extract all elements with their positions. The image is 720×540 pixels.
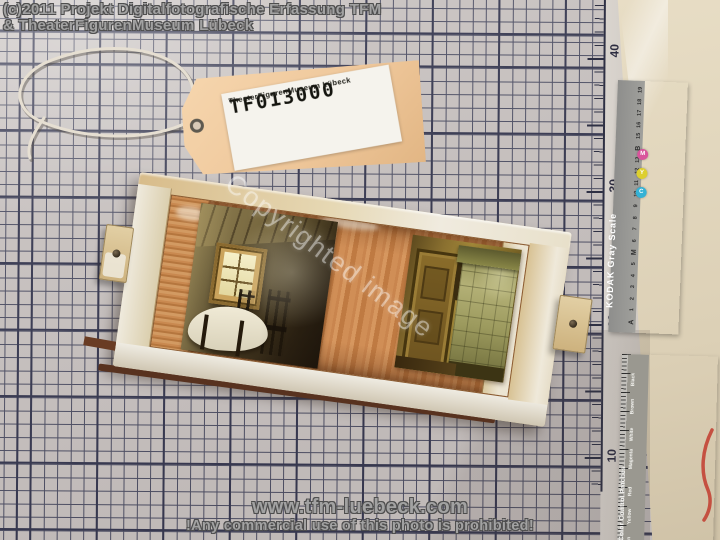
gray-scale-step-label: 18 (637, 95, 643, 107)
photo-stove-cornice (457, 245, 522, 270)
gray-scale-step-label: 5 (631, 258, 637, 270)
color-patch-label: White (629, 428, 635, 442)
prohibition-notice: !Any commercial use of this photo is pro… (0, 518, 720, 534)
website-watermark: www.tfm-luebeck.com (0, 496, 720, 519)
color-patch-label: Red (627, 487, 633, 497)
mat-ruler-number: 40 (607, 38, 621, 64)
color-patch-label: Brown (629, 398, 635, 414)
gray-scale-step-label: 6 (632, 234, 638, 246)
gray-scale-step-label: 7 (632, 223, 638, 235)
tag-label: TF013000 TheaterFigurenMuseum Lübeck (221, 65, 402, 171)
copyright-line2: & TheaterFigurenMuseum Lübeck (3, 17, 253, 34)
color-patch-label: Magenta (628, 448, 635, 468)
gray-scale-step-label: 4 (630, 269, 636, 281)
gray-scale-step-label: 3 (630, 281, 636, 293)
color-patch-label: Black (630, 373, 636, 386)
mat-ruler-number: 10 (605, 443, 619, 469)
gray-scale-step-label: 19 (637, 84, 643, 96)
photo-stage: 40302010 TF013000 TheaterFigurenMuseum L… (0, 0, 720, 540)
gray-scale-step-label: M (631, 247, 638, 259)
latch-screw (568, 319, 577, 328)
gray-scale-step-label: 2 (629, 292, 635, 304)
photo-door-panel (420, 266, 449, 302)
gray-scale-step-label: 8 (633, 211, 639, 223)
gray-scale-step-label: 1 (629, 304, 635, 316)
copyright-line1: (c)2011 Projekt Digitalfotografische Erf… (3, 1, 381, 18)
tag-eyelet (189, 118, 204, 133)
gray-scale-step-label: A (628, 316, 635, 328)
gray-scale-step-label: 9 (633, 200, 639, 212)
gray-scale-step-label: 15 (636, 130, 642, 142)
gray-scale-step-label: 17 (637, 107, 643, 119)
gray-scale-step-label: 16 (636, 119, 642, 131)
inventory-tag: TF013000 TheaterFigurenMuseum Lübeck (179, 60, 426, 178)
kodak-gray-scale: KODAK Gray Scale MYC A12345M678910111213… (608, 80, 688, 335)
